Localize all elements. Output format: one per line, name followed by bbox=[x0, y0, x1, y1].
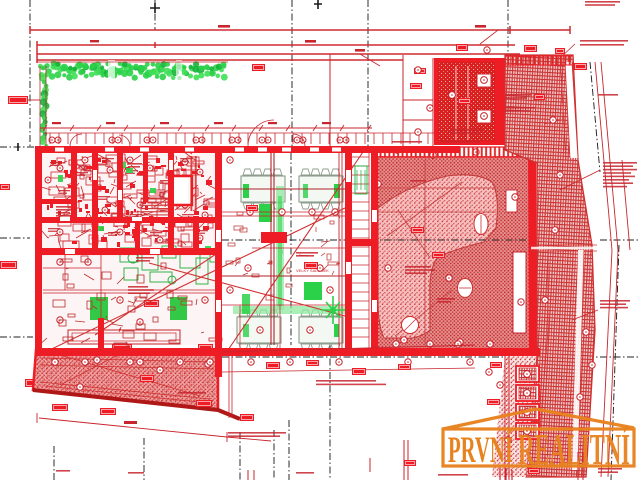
svg-text:REALITNÍ: REALITNÍ bbox=[518, 425, 630, 474]
svg-text:PRVNÍ: PRVNÍ bbox=[448, 429, 513, 471]
